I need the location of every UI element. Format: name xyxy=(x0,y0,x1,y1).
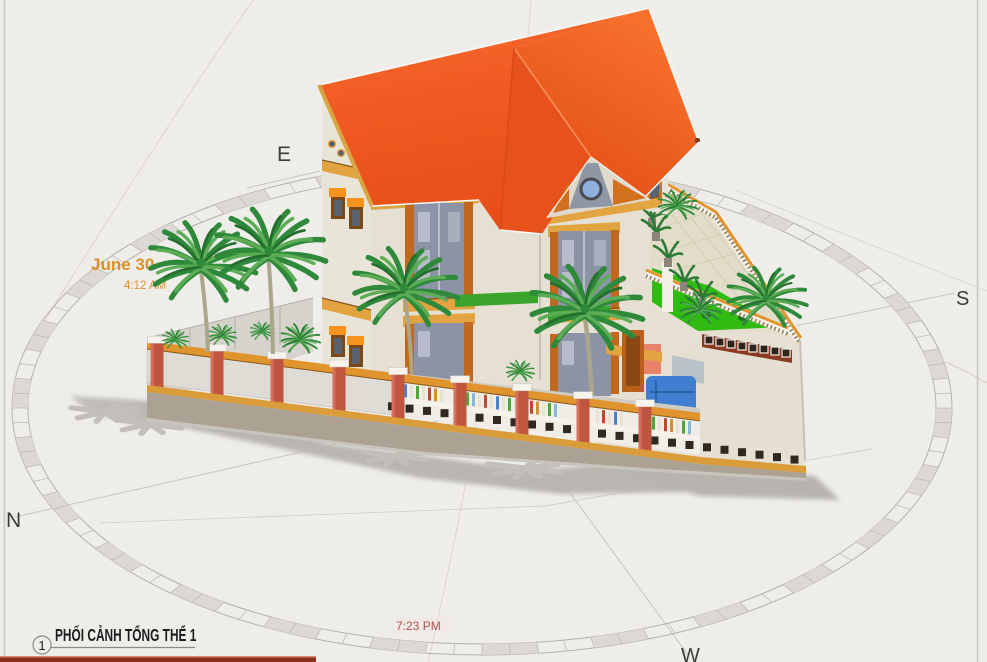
svg-text:E: E xyxy=(277,143,291,166)
svg-text:S: S xyxy=(956,288,969,310)
svg-text:1: 1 xyxy=(38,638,45,653)
svg-text:PHỐI CẢNH TỔNG THỂ 1: PHỐI CẢNH TỔNG THỂ 1 xyxy=(55,625,196,646)
svg-text:June 30: June 30 xyxy=(91,255,154,274)
svg-text:7:23 PM: 7:23 PM xyxy=(396,619,441,633)
svg-text:W: W xyxy=(681,645,700,662)
svg-text:N: N xyxy=(6,509,21,532)
